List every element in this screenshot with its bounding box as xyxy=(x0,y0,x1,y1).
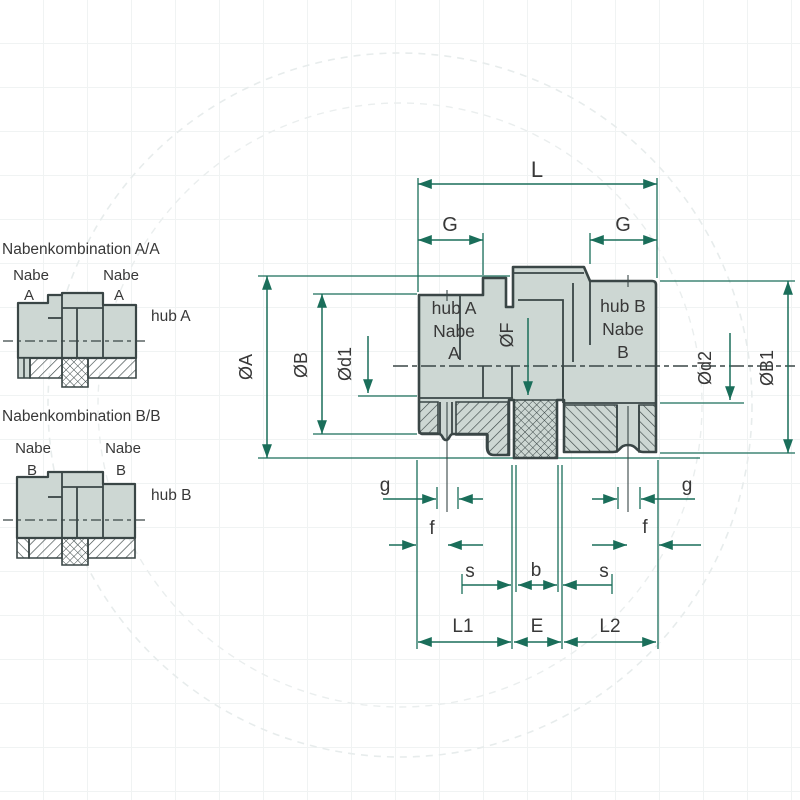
figure-aa-nabe-left: Nabe xyxy=(13,267,49,284)
figure-bb-nabe-left: Nabe xyxy=(15,440,51,457)
dim-label-diad1: Ød1 xyxy=(335,347,355,381)
figure-aa-letter-right: A xyxy=(114,287,124,304)
coupling-drawing-svg: hub A Nabe A hub B Nabe B L G G ØA ØB Ød… xyxy=(0,0,800,800)
background-watermark xyxy=(0,0,800,800)
dim-label-L1: L1 xyxy=(452,616,473,637)
figure-bb-side-label: hub B xyxy=(151,487,192,504)
dim-label-s-right: s xyxy=(599,561,609,582)
figure-bb-letter-right: B xyxy=(116,462,126,479)
dim-label-L2: L2 xyxy=(599,616,620,637)
hub-b-label-line2: Nabe xyxy=(602,319,644,339)
dim-label-diaA: ØA xyxy=(236,354,256,380)
figure-bb-nabe-right: Nabe xyxy=(105,440,141,457)
figure-aa-side-label: hub A xyxy=(151,308,191,325)
figure-aa-letter-left: A xyxy=(24,287,34,304)
hub-a-label-line3: A xyxy=(448,343,460,363)
hub-b-hatch-left xyxy=(564,405,617,452)
dim-label-diaB1: ØB1 xyxy=(757,350,777,386)
dim-label-f-left: f xyxy=(429,518,435,539)
hub-a-label-line1: hub A xyxy=(432,298,477,318)
hub-b-label-line3: B xyxy=(617,342,629,362)
dim-label-diaB: ØB xyxy=(291,352,311,378)
dim-label-G-left: G xyxy=(442,214,458,236)
dim-label-g-right: g xyxy=(682,475,693,496)
figure-aa-title: Nabenkombination A/A xyxy=(2,241,160,258)
technical-drawing-page: hub A Nabe A hub B Nabe B L G G ØA ØB Ød… xyxy=(0,0,800,800)
dim-label-diaF: ØF xyxy=(497,322,517,347)
figure-aa-nabe-right: Nabe xyxy=(103,267,139,284)
dim-label-f-right: f xyxy=(642,517,648,538)
dim-label-b: b xyxy=(531,560,542,581)
dim-label-diad2: Ød2 xyxy=(695,351,715,385)
dim-label-L: L xyxy=(531,157,543,182)
dim-label-g-left: g xyxy=(380,475,391,496)
dim-label-E: E xyxy=(531,616,544,637)
dim-label-G-right: G xyxy=(615,214,631,236)
figure-bb-title: Nabenkombination B/B xyxy=(2,408,161,425)
hub-a-hatch-left xyxy=(419,402,438,433)
hub-b-label-line1: hub B xyxy=(600,296,646,316)
hub-b-hatch-right xyxy=(639,405,656,452)
spider-hatch xyxy=(514,400,557,458)
hub-a-label-line2: Nabe xyxy=(433,321,475,341)
dim-label-s-left: s xyxy=(465,561,475,582)
